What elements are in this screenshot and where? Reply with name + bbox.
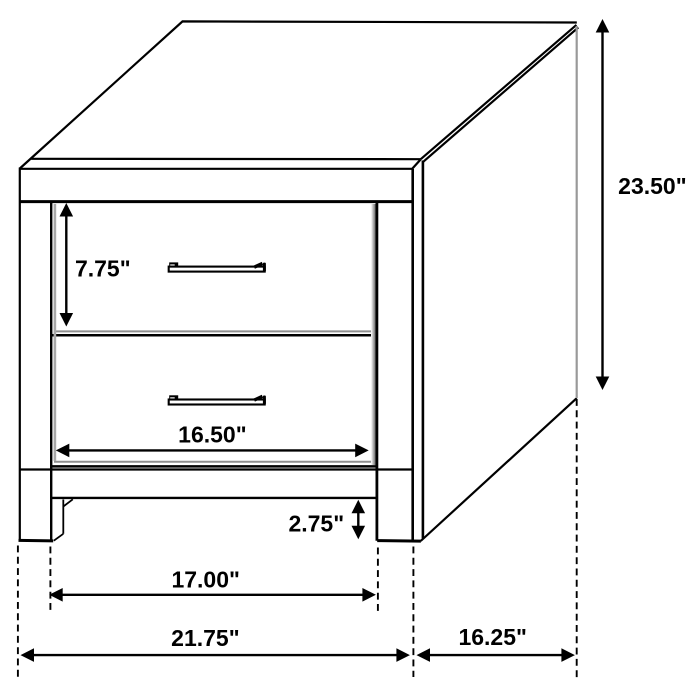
svg-text:16.50": 16.50" xyxy=(178,422,246,448)
svg-text:21.75": 21.75" xyxy=(171,625,239,651)
svg-text:16.25": 16.25" xyxy=(458,624,526,650)
svg-text:23.50": 23.50" xyxy=(618,173,686,199)
svg-text:2.75": 2.75" xyxy=(288,511,344,537)
svg-text:7.75": 7.75" xyxy=(75,256,131,282)
svg-text:17.00": 17.00" xyxy=(171,567,239,593)
